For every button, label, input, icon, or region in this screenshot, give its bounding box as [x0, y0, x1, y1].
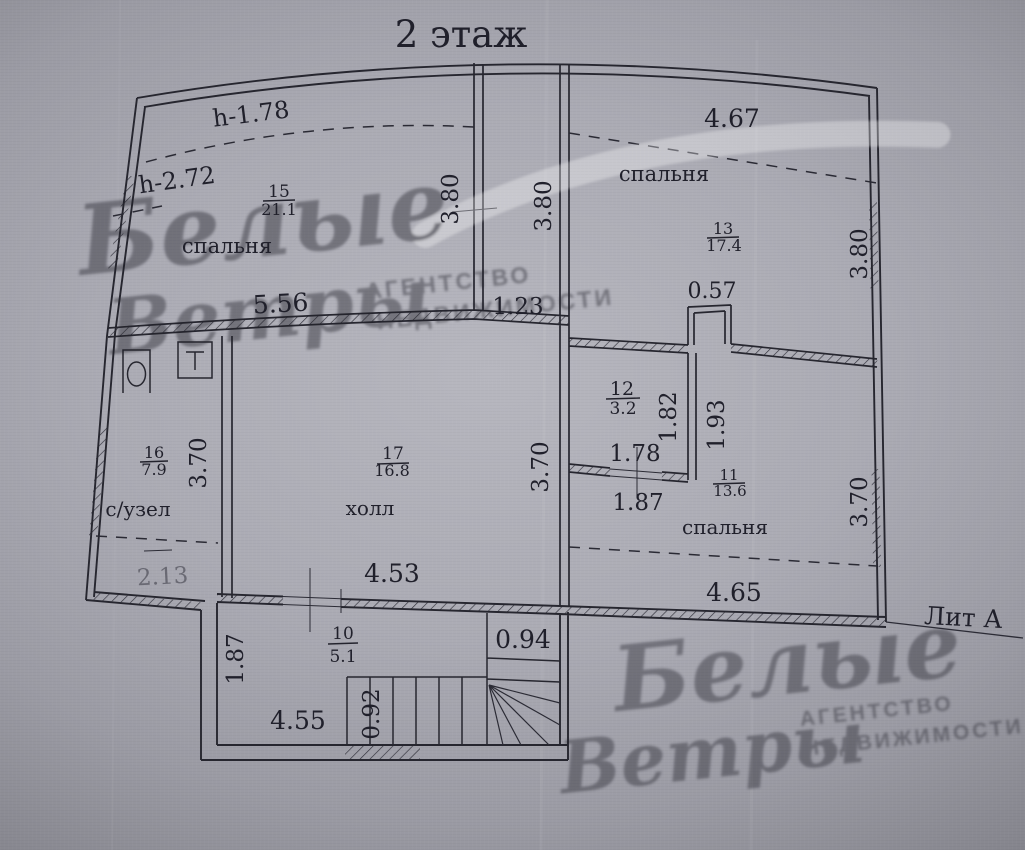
room10-area: 5.1 — [329, 647, 356, 667]
room15-number: 15 — [268, 182, 290, 202]
dim-stair-room-width: 4.55 — [270, 706, 326, 735]
dim-room15-width: 5.56 — [252, 288, 309, 320]
room16-label: с/узел — [105, 497, 170, 521]
room15-area: 21.1 — [261, 200, 297, 219]
dim-strip-height-left: 3.80 — [438, 173, 464, 224]
floor-plan-drawing: Белые Ветры АГЕНТСТВО НЕДВИЖИМОСТИ Белые… — [0, 0, 1025, 850]
dim-room11-width: 4.65 — [706, 578, 762, 607]
wall-core-room12-bottom-b — [662, 476, 688, 479]
wall-core-hall-bottom-left — [217, 598, 283, 601]
room10-number: 10 — [332, 624, 354, 644]
dim-notch-width: 0.57 — [688, 279, 737, 304]
room12-number: 12 — [610, 378, 634, 400]
room12-area: 3.2 — [609, 399, 636, 419]
room13-area: 17.4 — [706, 236, 742, 255]
dim-room11-nook-height: 1.93 — [704, 399, 730, 450]
wall-core-13-12 — [569, 342, 688, 349]
room17-area: 16.8 — [374, 461, 410, 480]
window-right-room13 — [873, 202, 875, 289]
room15-label: спальня — [182, 234, 272, 258]
dim-room11-height: 3.70 — [847, 476, 873, 527]
dim-strip-height-right: 3.80 — [531, 180, 557, 231]
building-letter-label: Лит А — [924, 601, 1004, 634]
wall-core-13-11 — [731, 348, 877, 363]
dim-room12-door-width: 1.78 — [609, 441, 660, 467]
dim-bath-width: 2.13 — [136, 563, 189, 592]
dim-stair-room-height: 1.87 — [223, 633, 249, 684]
page-title: 2 этаж — [395, 13, 528, 56]
dim-room12-below: 1.87 — [612, 490, 663, 516]
room17-label: холл — [346, 496, 395, 520]
dim-closet-width: 0.94 — [495, 625, 551, 654]
dim-stair-width: 0.92 — [359, 688, 385, 739]
dim-room13-height: 3.80 — [847, 228, 873, 279]
dim-strip-width: 1.23 — [492, 294, 543, 320]
dim-hall-height: 3.70 — [528, 441, 554, 492]
wall-core-room12-bottom-a — [569, 468, 610, 472]
stair-winder-fan — [489, 685, 560, 745]
dim-room12-height: 1.82 — [656, 391, 682, 442]
dim-room13-width: 4.67 — [704, 104, 760, 133]
dim-bath-height: 3.70 — [186, 437, 212, 488]
room11-area: 13.6 — [713, 482, 746, 500]
room13-label: спальня — [619, 162, 709, 186]
floor-plan-scan: Белые Ветры АГЕНТСТВО НЕДВИЖИМОСТИ Белые… — [0, 0, 1025, 850]
room11-label: спальня — [682, 515, 768, 539]
dim-hall-width: 4.53 — [364, 559, 420, 588]
height-mark-1: h-1.78 — [211, 95, 291, 132]
room16-area: 7.9 — [141, 460, 166, 479]
